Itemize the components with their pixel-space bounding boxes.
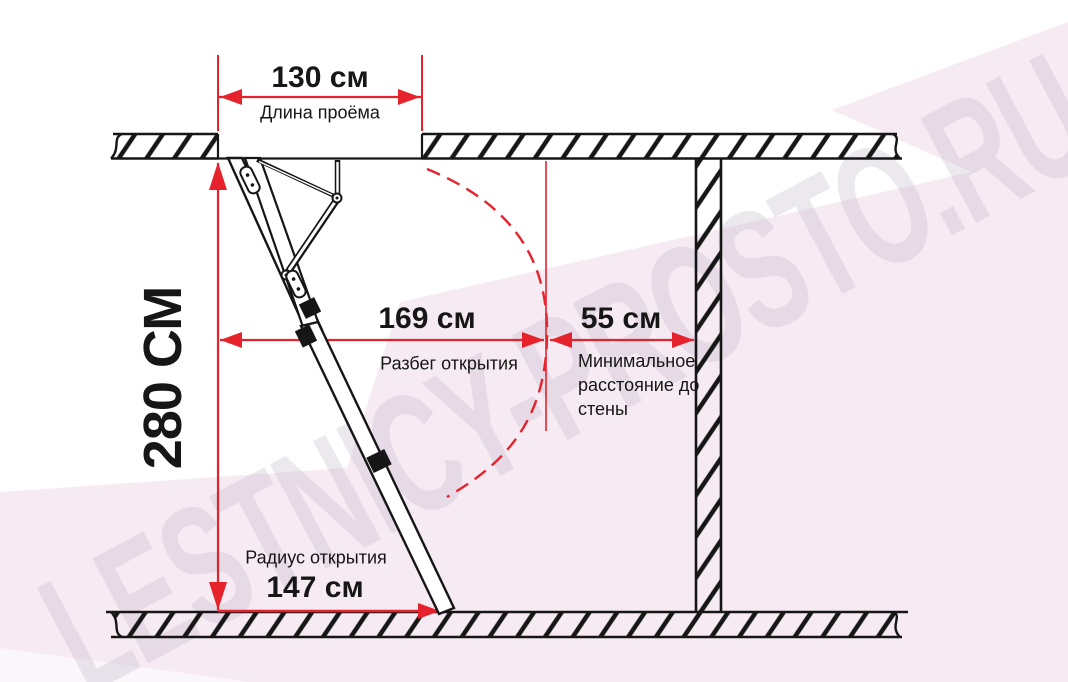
dim-run-label: Разбег открытия — [380, 354, 518, 375]
dim-radius-label: Радиус открытия — [245, 548, 387, 569]
ceiling-opening — [219, 132, 421, 158]
attic-ladder — [228, 158, 454, 614]
ceiling-slab — [111, 132, 902, 159]
dim-opening-value: 130 см — [271, 61, 368, 95]
dim-height-value: 280 СМ — [132, 287, 194, 469]
ladder-installation-diagram: LESTNICY-PROSTO.RU — [0, 0, 1068, 682]
dim-opening-label: Длина проёма — [260, 103, 380, 124]
dim-wall-value: 55 см — [581, 302, 662, 336]
floor-slab — [106, 612, 908, 637]
dim-radius-value: 147 см — [266, 571, 363, 605]
dim-wall-label: Минимальное расстояние до стены — [578, 349, 704, 421]
dim-run-value: 169 см — [378, 302, 475, 336]
